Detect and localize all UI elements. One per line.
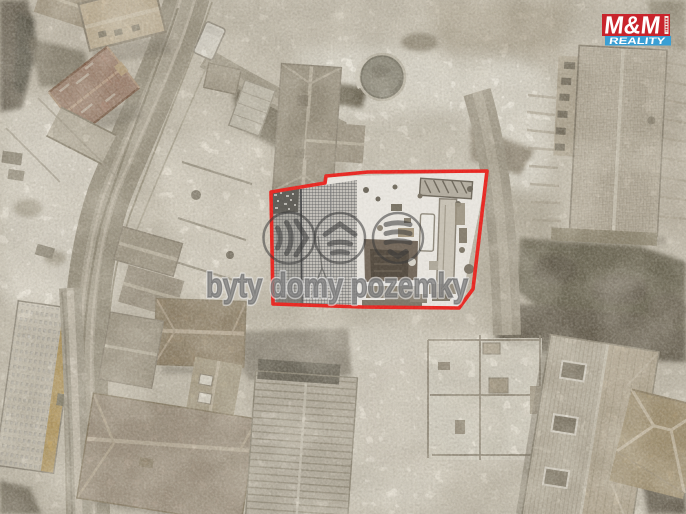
svg-text:byty domy pozemky: byty domy pozemky	[206, 267, 468, 305]
svg-text:REALITY: REALITY	[608, 36, 666, 47]
